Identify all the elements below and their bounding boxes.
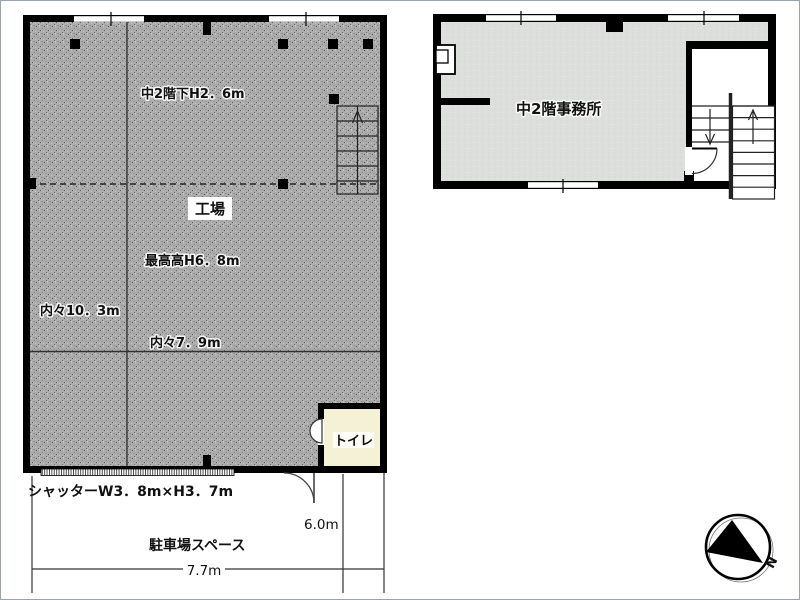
column xyxy=(363,39,373,49)
window xyxy=(269,16,339,22)
column xyxy=(278,179,288,189)
inner-width-label: 内々10．3m xyxy=(40,303,120,319)
floorplan-drawing: トイレ 中2階下H2．6m 工場 最高高H6．8m 内々10．3m 内々7．9m… xyxy=(1,1,800,600)
column xyxy=(329,94,339,104)
toilet-room: トイレ xyxy=(310,403,387,473)
column xyxy=(328,39,338,49)
door-swing-arc xyxy=(284,473,314,503)
factory-room-label: 工場 xyxy=(195,200,225,218)
column xyxy=(70,39,80,49)
max-height-label: 最高高H6．8m xyxy=(145,253,240,269)
inner-depth-label: 内々7．9m xyxy=(150,335,221,351)
stairwell-wall-horizontal xyxy=(686,41,776,49)
parking-depth-label: 6.0m xyxy=(304,517,339,533)
ground-floor-plan: トイレ 中2階下H2．6m 工場 最高高H6．8m 内々10．3m 内々7．9m… xyxy=(23,12,387,593)
entrance-door xyxy=(284,473,314,503)
interior-wall-stub xyxy=(433,98,490,105)
shutter-size-label: シャッターW3．8m×H3．7m xyxy=(28,484,233,500)
window xyxy=(74,16,144,22)
toilet-label: トイレ xyxy=(334,434,373,449)
floorplan-canvas: トイレ 中2階下H2．6m 工場 最高高H6．8m 内々10．3m 内々7．9m… xyxy=(0,0,800,600)
column xyxy=(278,39,288,49)
frontage-dimension-label: 7.7m xyxy=(187,563,222,579)
wall-stub xyxy=(30,178,36,189)
office-room-label: 中2階事務所 xyxy=(516,100,601,118)
door-opening xyxy=(685,147,693,175)
fixture-cabinet xyxy=(436,45,455,74)
wall-stub xyxy=(203,455,211,466)
wall-stub xyxy=(606,22,623,32)
wall-stub xyxy=(203,22,211,35)
fixture-inner xyxy=(436,50,448,63)
compass-icon: N xyxy=(706,515,779,582)
parking-space-label: 駐車場スペース xyxy=(149,537,245,554)
mezzanine-under-height-label: 中2階下H2．6m xyxy=(141,86,245,102)
shutter-symbol xyxy=(41,469,234,476)
mezzanine-plan: 中2階事務所 xyxy=(433,11,776,199)
